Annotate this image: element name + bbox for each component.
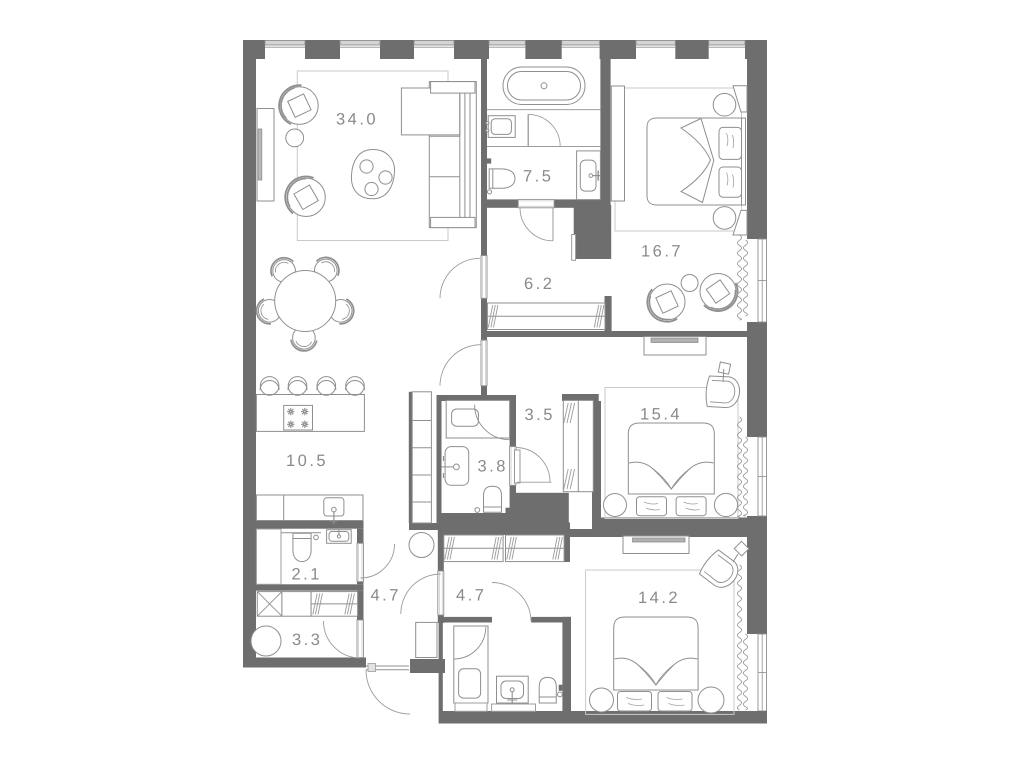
svg-text:7.5: 7.5	[523, 168, 553, 186]
svg-text:3.5: 3.5	[525, 406, 555, 424]
svg-text:16.7: 16.7	[641, 243, 683, 261]
svg-text:6.2: 6.2	[524, 275, 554, 293]
svg-text:2.1: 2.1	[292, 566, 322, 584]
svg-text:4.7: 4.7	[456, 587, 486, 605]
svg-text:34.0: 34.0	[336, 111, 378, 129]
svg-text:10.5: 10.5	[286, 452, 328, 470]
svg-text:14.2: 14.2	[638, 589, 680, 607]
svg-text:3.3: 3.3	[292, 631, 322, 649]
svg-text:4.7: 4.7	[371, 587, 401, 605]
svg-text:15.4: 15.4	[640, 406, 682, 424]
svg-text:3.8: 3.8	[478, 458, 508, 476]
